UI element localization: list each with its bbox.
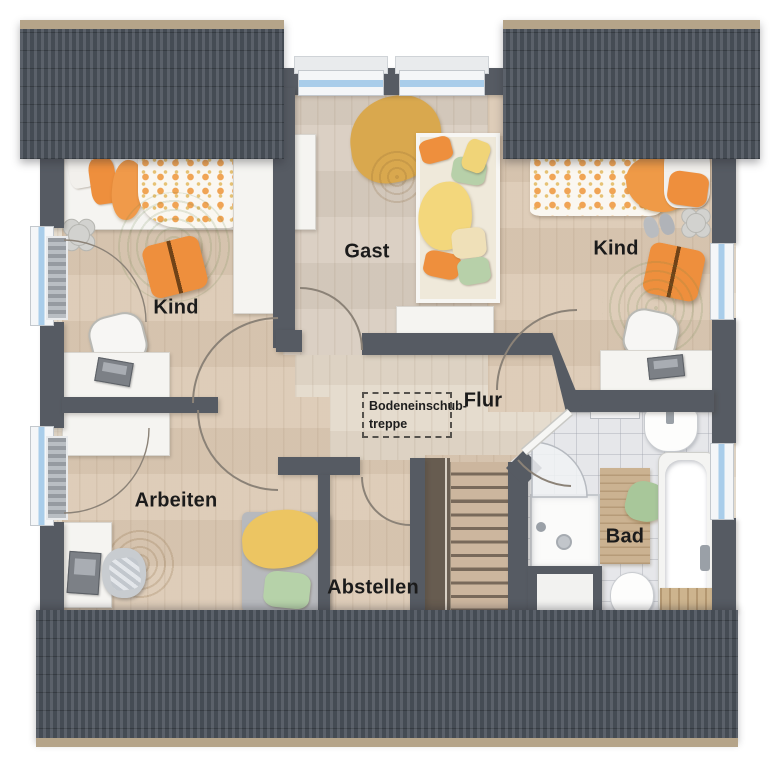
shower-drain xyxy=(556,534,572,550)
room-label-kind-left: Kind xyxy=(153,297,198,320)
wall-kindleft-bottom xyxy=(62,397,218,413)
side-table-flower-right xyxy=(676,204,716,242)
wall-hall-southwest xyxy=(278,457,360,475)
wall-stair-bad xyxy=(508,462,528,612)
wall-bad-top xyxy=(566,390,714,412)
armchair-pillow xyxy=(108,556,142,592)
room-label-flur: Flur xyxy=(464,390,503,413)
wall-exterior-right-2 xyxy=(712,318,736,443)
room-label-bad: Bad xyxy=(606,526,644,549)
stair-stringer xyxy=(424,458,450,612)
window-bad xyxy=(710,443,734,520)
laptop-arbeiten xyxy=(67,551,102,595)
wall-exterior-left-1 xyxy=(40,150,64,228)
sink-faucet xyxy=(666,410,674,424)
roof-edge-top-right xyxy=(503,20,760,29)
stair-treads xyxy=(450,462,515,612)
roof-bottom xyxy=(36,610,738,747)
dormer-window-2 xyxy=(399,70,485,96)
roof-top-left xyxy=(20,20,284,159)
attic-hatch: Bodeneinschub- treppe xyxy=(362,392,452,438)
roof-edge-bottom xyxy=(36,738,738,747)
pillow-green-daybed xyxy=(262,570,312,611)
room-label-gast: Gast xyxy=(344,241,389,264)
shower-faucet xyxy=(536,522,546,532)
radiator-kind-left xyxy=(46,236,68,320)
wall-gast-bottom xyxy=(362,333,552,355)
attic-hatch-label-line1: Bodeneinschub- xyxy=(369,399,467,413)
wall-exterior-right-3 xyxy=(712,518,736,612)
bathtub-basin xyxy=(665,460,707,606)
room-label-abstellen: Abstellen xyxy=(327,577,419,600)
floor-plan: Kind Gast Kind Flur Arbeiten Abstellen B… xyxy=(0,0,775,763)
room-label-arbeiten: Arbeiten xyxy=(135,490,218,513)
shower xyxy=(530,494,600,570)
radiator-arbeiten xyxy=(46,436,68,520)
roof-edge-top-left xyxy=(20,20,284,29)
bathtub-faucet xyxy=(700,545,710,571)
dormer-window-1 xyxy=(298,70,384,96)
wall-gast-corner xyxy=(276,330,302,352)
wall-exterior-left-2 xyxy=(40,322,64,428)
sideboard-arbeiten xyxy=(62,412,170,456)
pillow-dotted-gast xyxy=(451,226,488,259)
laptop-right xyxy=(647,354,685,380)
bad-niche-cabinet xyxy=(537,574,593,610)
wall-exterior-left-3 xyxy=(40,522,64,612)
attic-hatch-label-line2: treppe xyxy=(369,417,407,431)
pillow-orange-right xyxy=(666,169,710,208)
window-kind-right xyxy=(710,243,734,320)
sideboard-gast xyxy=(396,306,494,336)
wall-exterior-right-1 xyxy=(712,150,736,243)
roof-top-right xyxy=(503,20,760,159)
room-label-kind-right: Kind xyxy=(593,238,638,261)
